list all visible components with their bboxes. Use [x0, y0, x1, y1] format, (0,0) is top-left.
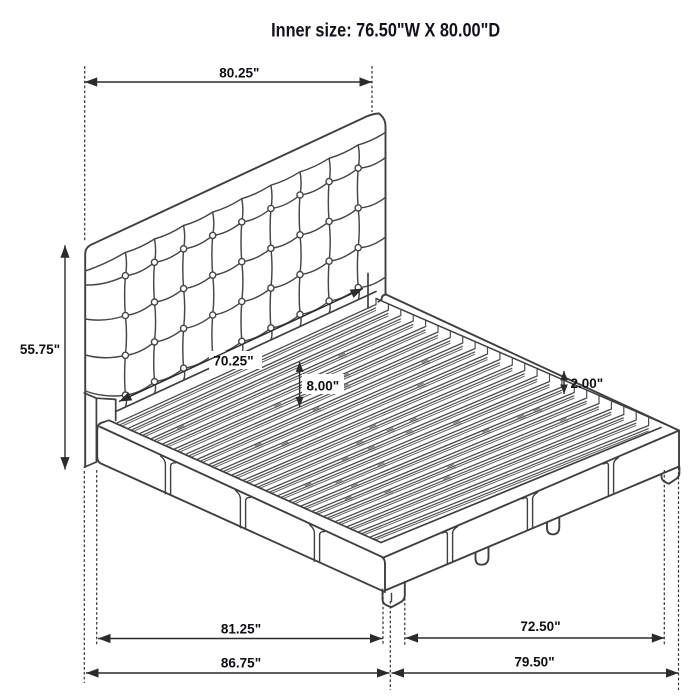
svg-text:55.75": 55.75" — [20, 342, 60, 357]
svg-text:72.50": 72.50" — [520, 619, 560, 634]
svg-text:2.00": 2.00" — [570, 376, 603, 391]
svg-text:81.25": 81.25" — [221, 622, 261, 637]
svg-text:8.00": 8.00" — [306, 379, 339, 394]
svg-text:86.75": 86.75" — [221, 656, 261, 671]
svg-text:70.25": 70.25" — [213, 354, 253, 369]
svg-text:80.25": 80.25" — [219, 66, 259, 81]
svg-text:Inner size: 76.50"W X 80.00"D: Inner size: 76.50"W X 80.00"D — [271, 20, 500, 41]
svg-text:79.50": 79.50" — [514, 655, 554, 670]
